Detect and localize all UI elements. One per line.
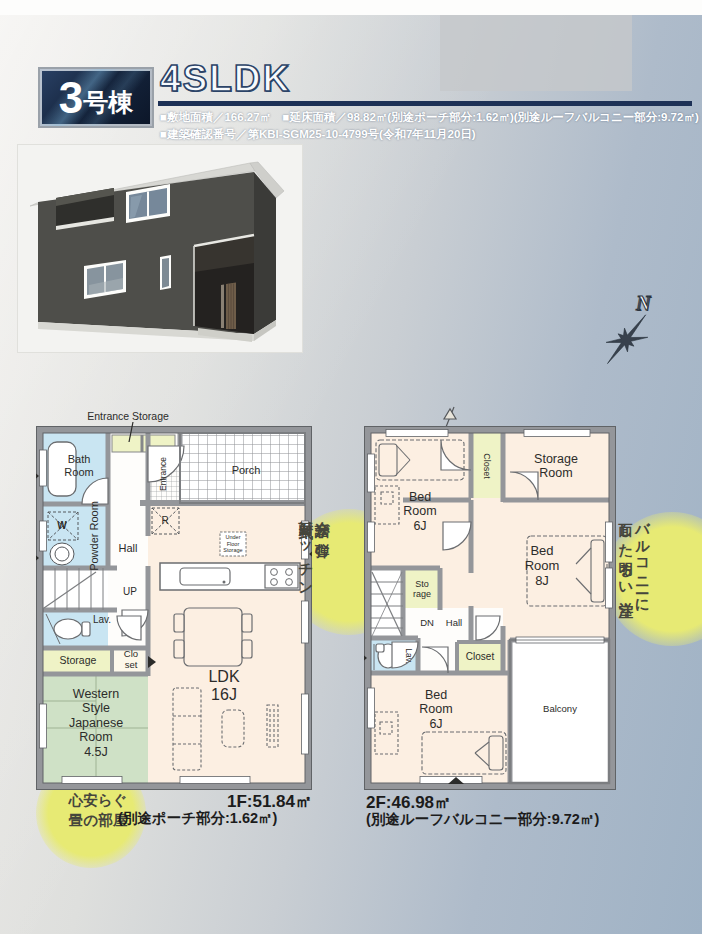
- label-closet1: Clo set: [124, 649, 138, 671]
- label-powder: Powder Room: [88, 501, 101, 571]
- kitchen-callout-text: 会話が弾む 対面式キッチン: [297, 509, 330, 635]
- label-up: UP: [123, 586, 137, 598]
- header-rule: [158, 101, 692, 106]
- label-under-floor: Under Floor Storage: [223, 534, 242, 554]
- label-closet-mid: Closet: [466, 651, 494, 663]
- label-ldk: LDK 16J: [208, 668, 239, 705]
- label-bath: Bath Room: [64, 453, 93, 478]
- spec-line-permit: ■建築確認番号／第KBI-SGM25-10-4799号(令和7年11月20日): [160, 127, 700, 142]
- label-hall: Hall: [119, 542, 138, 555]
- entrance-storage-pointer: [126, 422, 136, 442]
- compass: N: [590, 290, 670, 375]
- powder-sink: [50, 543, 74, 565]
- building-number-suffix: 号棟: [83, 86, 133, 119]
- label-storage-mid: Sto rage: [413, 579, 431, 600]
- entrance-storage-label: Entrance Storage: [58, 410, 198, 422]
- plan-type-title: 4SLDK: [160, 58, 291, 100]
- label-porch: Porch: [232, 464, 261, 477]
- label-fridge: R: [161, 515, 168, 527]
- label-storage1: Storage: [60, 654, 97, 666]
- kitchen-callout-line2: 対面式キッチン: [297, 509, 314, 635]
- balcony-callout-line1: バルコニーに: [634, 512, 651, 644]
- house-render: [18, 145, 302, 352]
- kitchen-sink: [180, 568, 230, 585]
- entrance-sidelight: [221, 285, 224, 328]
- label-lav1: Lav.: [93, 614, 111, 626]
- label-washer: W: [57, 520, 66, 532]
- label-western: Western Style Japanese Room 4.5J: [69, 687, 123, 759]
- floor1-plan: Bath Room Powder Room W Hall UP Entrance…: [36, 426, 312, 790]
- floor1-area-note: (別途ポーチ部分:1.62㎡): [118, 809, 277, 828]
- label-entrance: Entrance: [159, 457, 169, 491]
- spec-line-areas: ■敷地面積／166.27㎡ ■延床面積／98.82㎡(別途ポーチ部分:1.62㎡…: [160, 110, 700, 125]
- kitchen-callout-line1: 会話が弾む: [314, 509, 331, 635]
- label-bed8: Bed Room 8J: [525, 544, 560, 589]
- floor2-drawing: [364, 426, 616, 790]
- floor2-plan: Bed Room 6J Closet Storage Room Bed Room…: [364, 426, 616, 790]
- stairs-area: [43, 568, 117, 610]
- building-number-badge: 3 号棟: [38, 67, 154, 128]
- top-margin: [0, 0, 702, 15]
- label-dn: DN: [420, 618, 434, 629]
- flyer-page: 3 号棟 4SLDK ■敷地面積／166.27㎡ ■延床面積／98.82㎡(別途…: [0, 0, 702, 934]
- building-number: 3: [59, 76, 83, 120]
- header-gray-panel: [440, 15, 632, 91]
- compass-north-label: N: [636, 292, 650, 315]
- label-storage-room: Storage Room: [534, 452, 578, 481]
- label-closet-top: Closet: [482, 453, 492, 479]
- label-hall2: Hall: [446, 618, 462, 629]
- floor2-area-note: (別途ルーフバルコニー部分:9.72㎡): [366, 810, 599, 829]
- house-side-wall: [254, 172, 276, 334]
- label-bed6-top: Bed Room 6J: [403, 490, 436, 533]
- house-render-drawing: [18, 145, 302, 352]
- balcony-callout-text: バルコニーに 面した明るい洋室: [617, 512, 650, 644]
- label-bed6-bottom: Bed Room 6J: [419, 688, 452, 731]
- balcony-callout-line2: 面した明るい洋室: [617, 512, 634, 644]
- label-balcony: Balcony: [543, 704, 577, 715]
- compass-star-icon: [590, 290, 670, 375]
- label-lav2: Lav.: [403, 648, 413, 663]
- stove: [265, 565, 298, 588]
- dining-set: [174, 608, 252, 666]
